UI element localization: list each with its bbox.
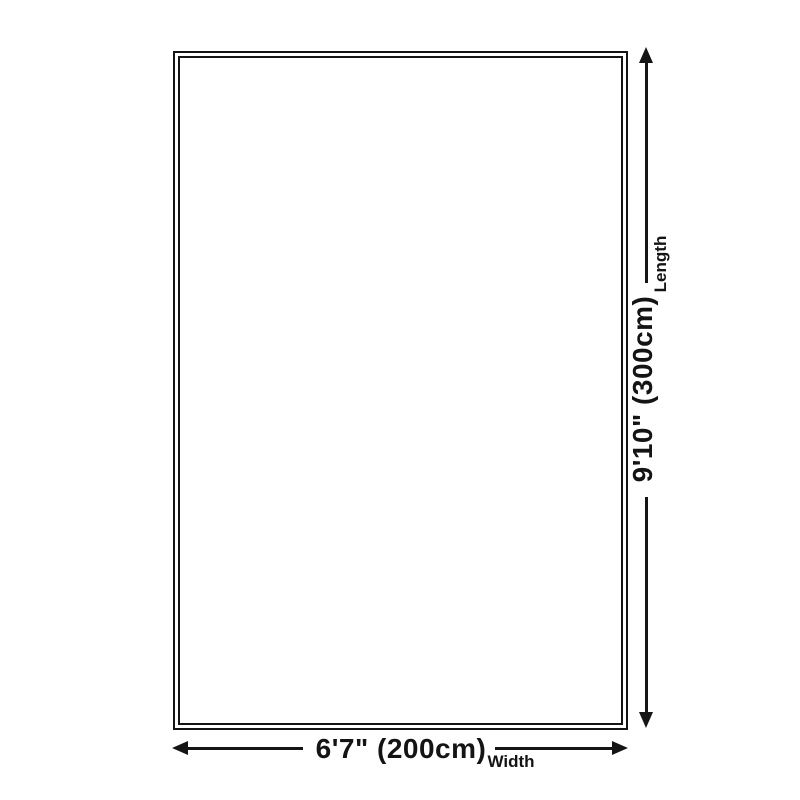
width-line-left: [185, 747, 303, 750]
arrow-right-icon: [612, 741, 628, 755]
arrow-down-icon: [639, 712, 653, 728]
length-line-upper: [645, 60, 648, 283]
length-axis-label: Length: [651, 236, 671, 293]
length-line-lower: [645, 497, 648, 716]
rug-size-diagram: Length 9'10" (300cm) 6'7" (200cm) Width: [0, 0, 800, 800]
width-line-right: [495, 747, 613, 750]
rug-outline-inner: [178, 56, 623, 725]
length-value-label: 9'10" (300cm): [627, 296, 659, 483]
rug-outline: [173, 51, 628, 730]
width-axis-label: Width: [487, 752, 534, 772]
width-value-label: 6'7" (200cm): [316, 733, 487, 765]
